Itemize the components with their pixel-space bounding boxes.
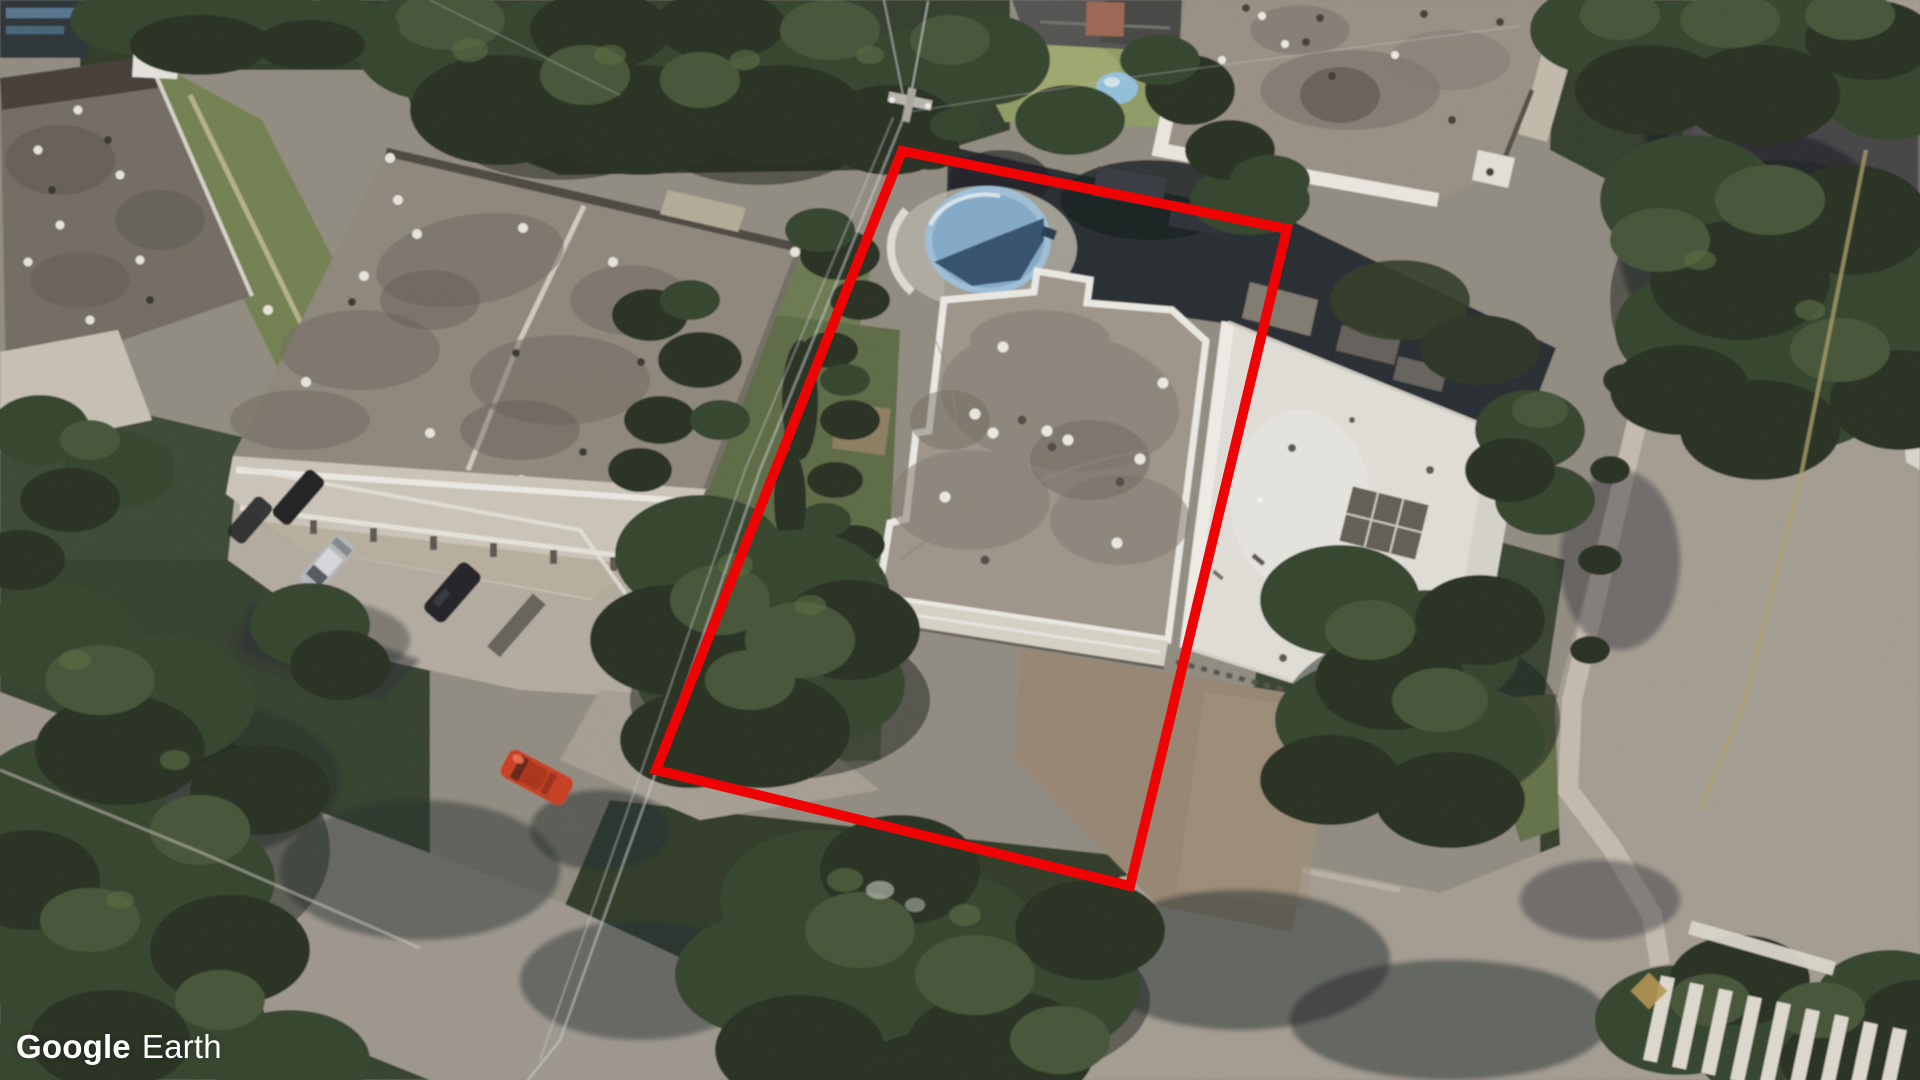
watermark-brand: Google	[16, 1028, 131, 1065]
satellite-canvas	[0, 0, 1920, 1080]
watermark-product: Earth	[142, 1028, 222, 1065]
google-earth-watermark: GoogleEarth	[16, 1028, 222, 1066]
google-earth-viewport: GoogleEarth	[0, 0, 1920, 1080]
